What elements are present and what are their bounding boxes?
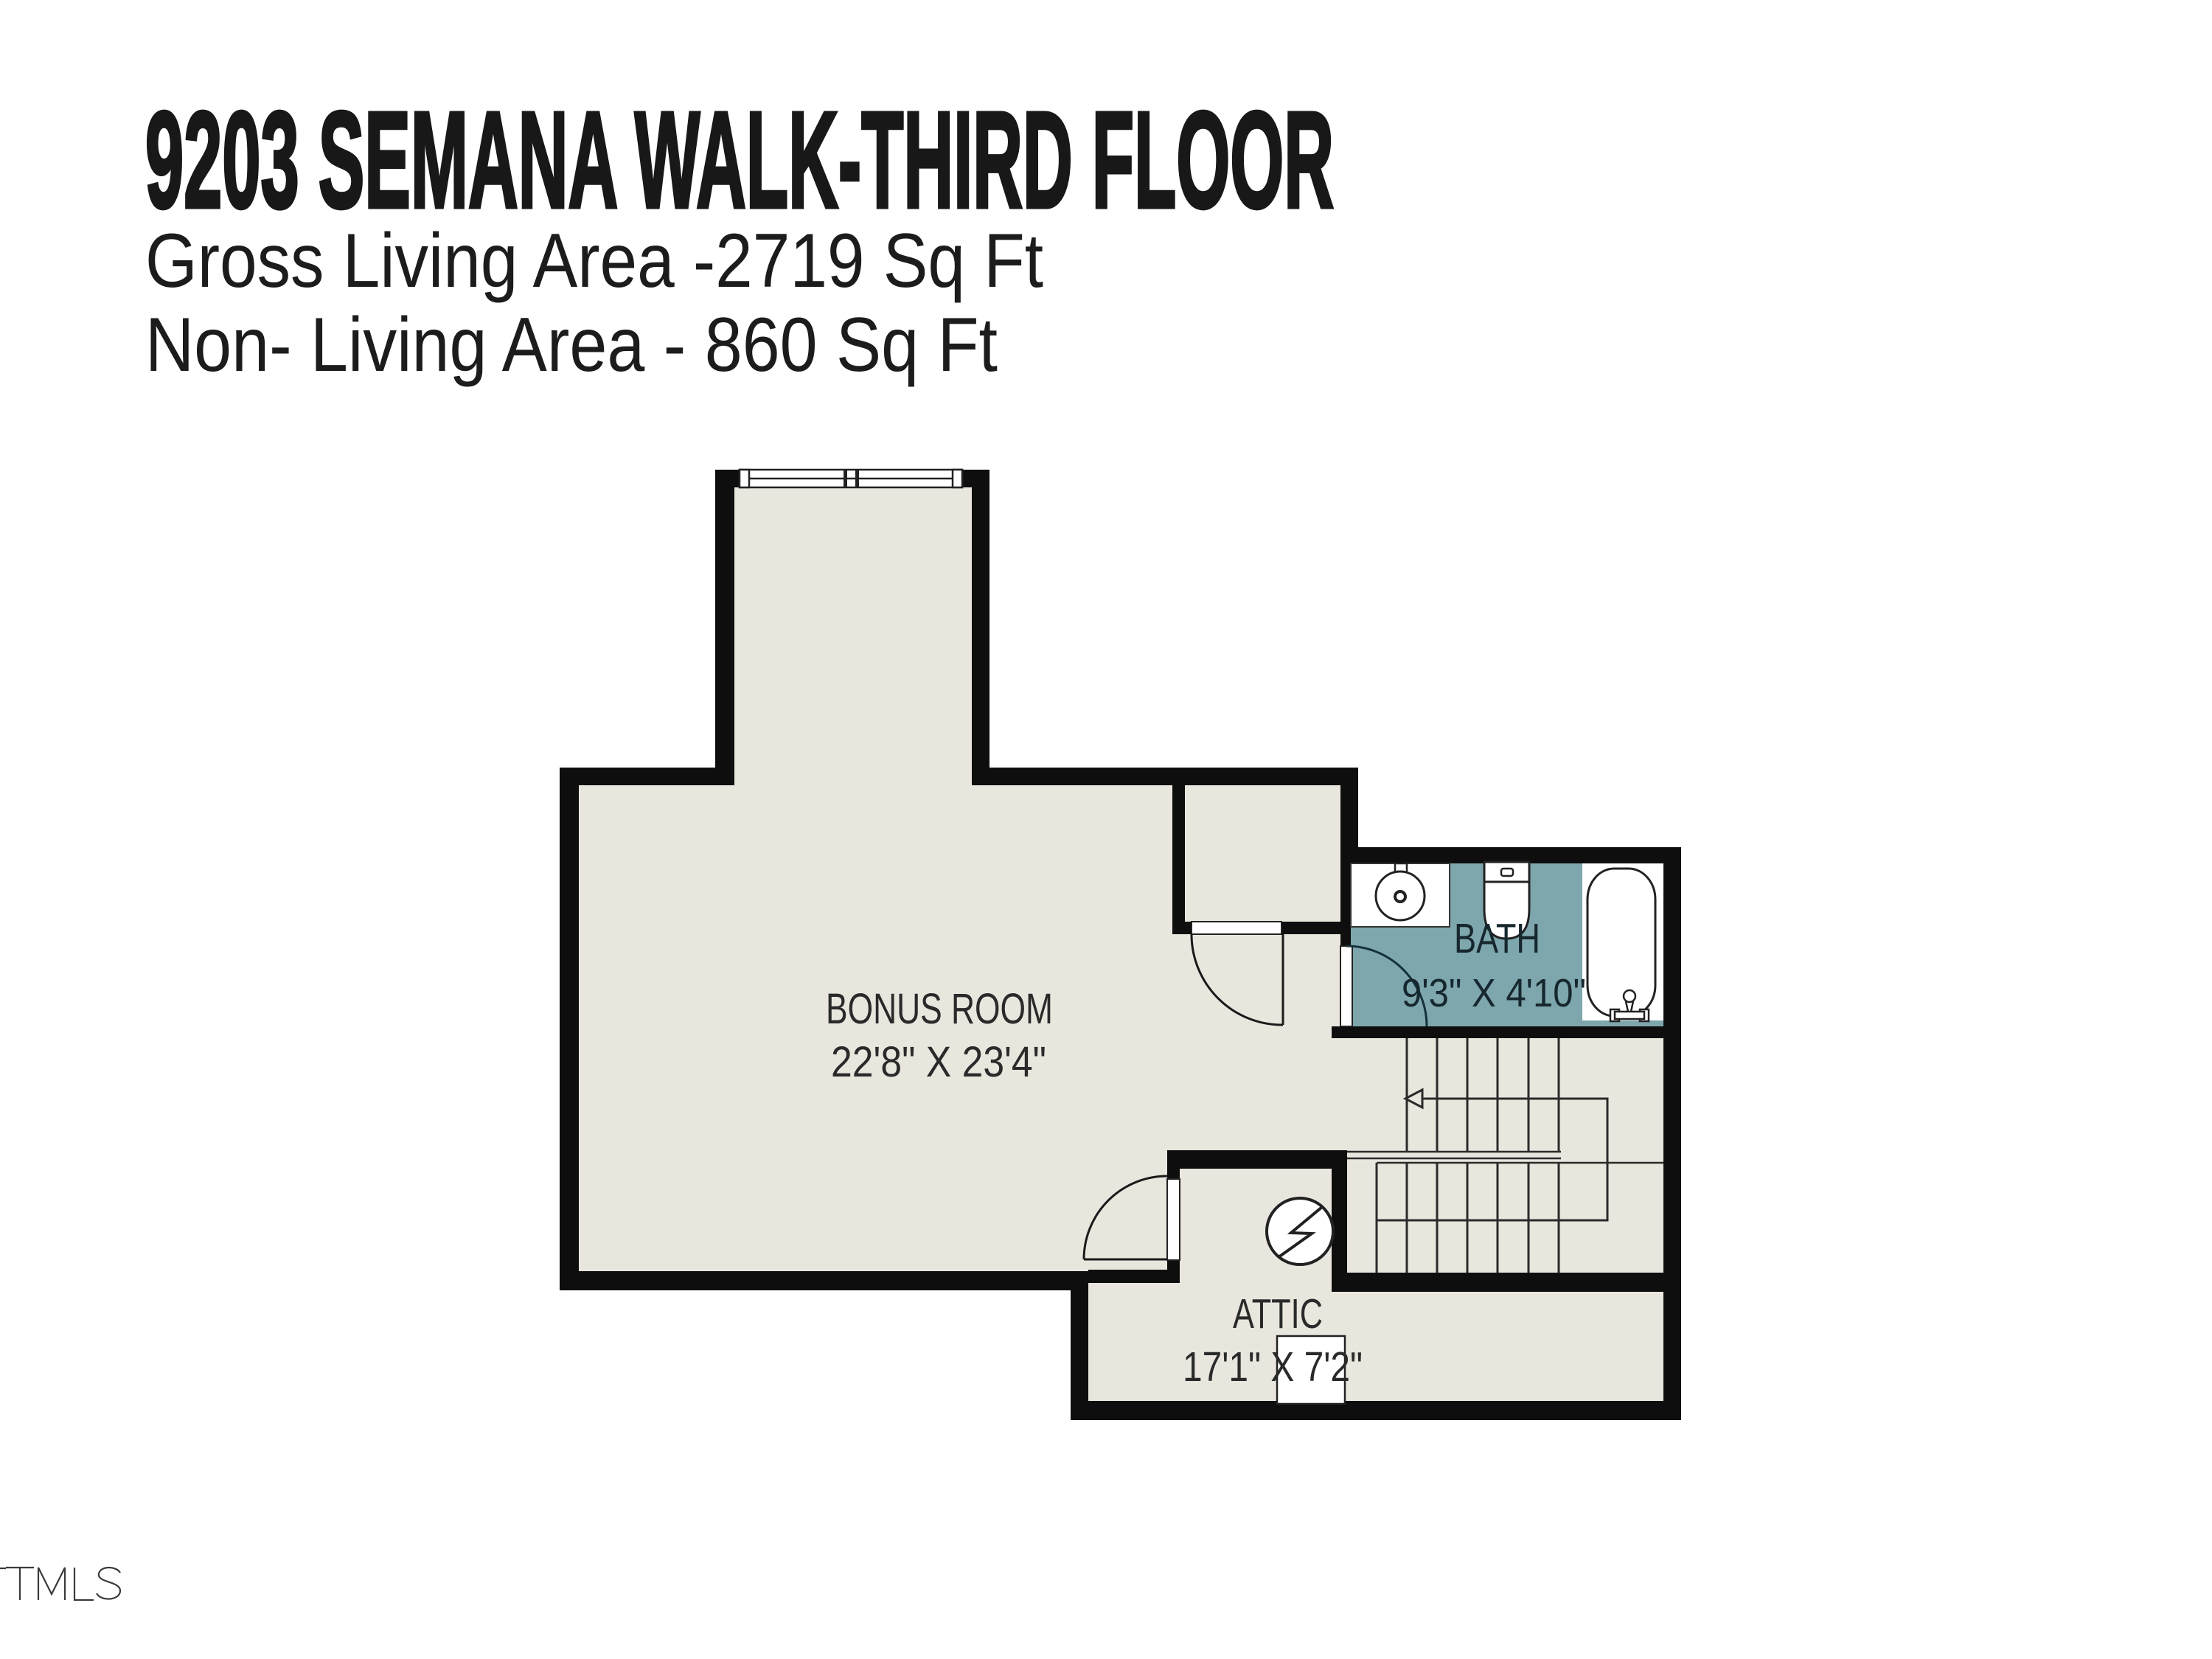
svg-text:ATTIC: ATTIC: [1233, 1290, 1323, 1338]
svg-text:17'1" X 7'2": 17'1" X 7'2": [1183, 1343, 1363, 1391]
svg-text:Gross Living Area -2719 Sq Ft: Gross Living Area -2719 Sq Ft: [145, 218, 1043, 304]
svg-text:BATH: BATH: [1454, 915, 1540, 962]
svg-text:Non- Living Area - 860 Sq Ft: Non- Living Area - 860 Sq Ft: [145, 302, 998, 388]
svg-text:9203 SEMANA WALK-THIRD FLOOR: 9203 SEMANA WALK-THIRD FLOOR: [145, 84, 1334, 237]
svg-text:9'3" X 4'10": 9'3" X 4'10": [1402, 971, 1586, 1015]
svg-text:22'8" X 23'4": 22'8" X 23'4": [831, 1038, 1046, 1086]
svg-text:BONUS ROOM: BONUS ROOM: [826, 985, 1053, 1033]
